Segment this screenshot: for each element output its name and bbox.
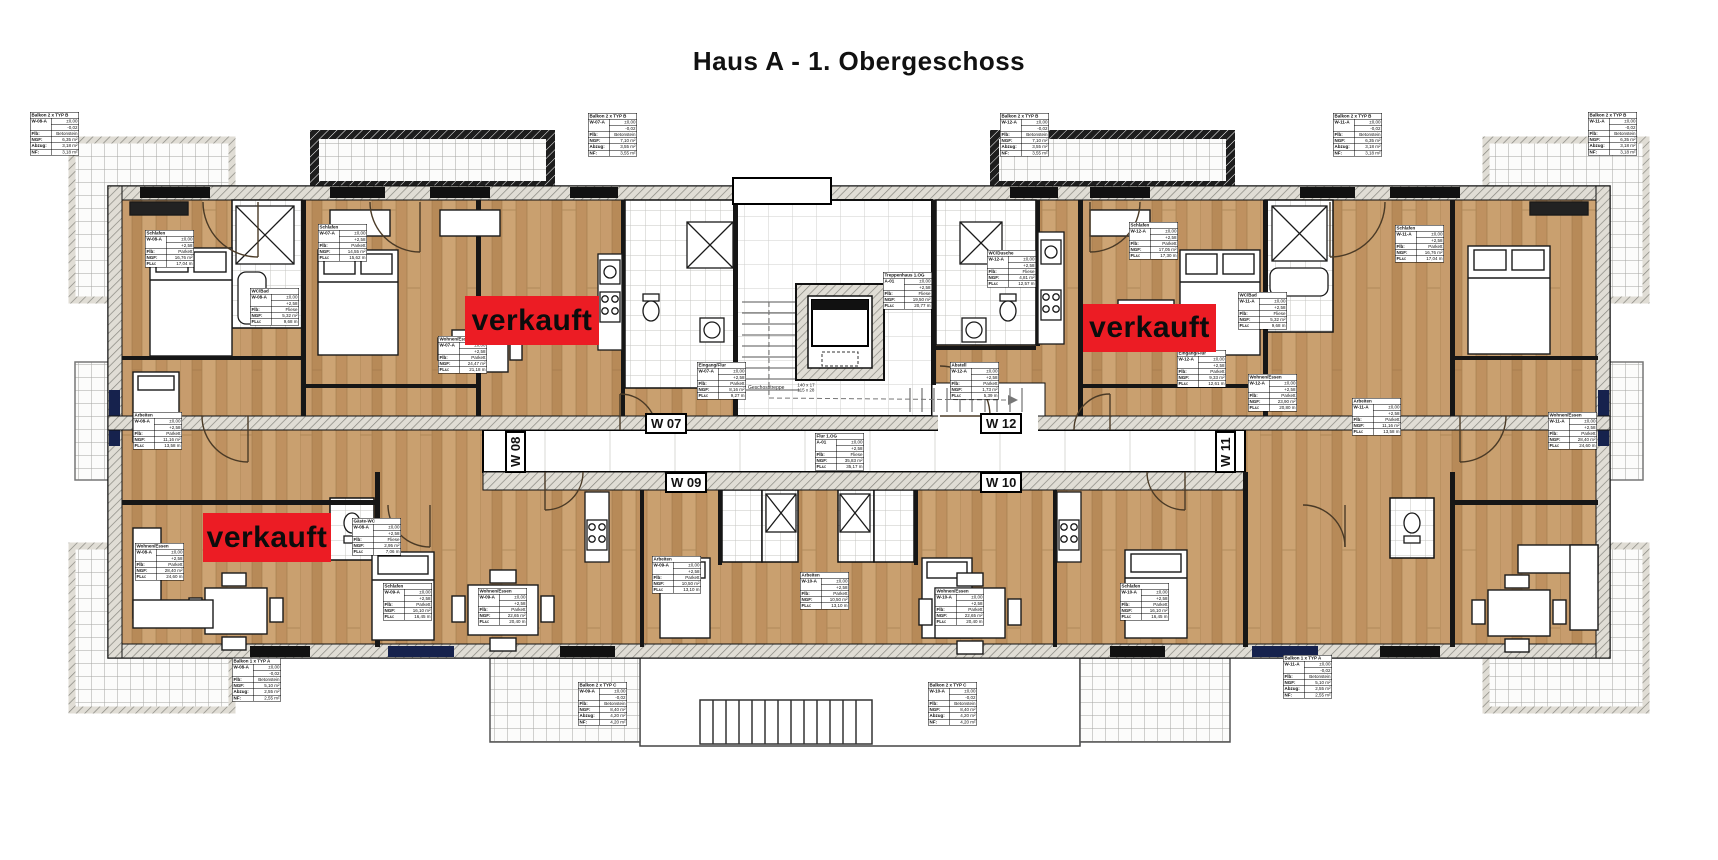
- bed: [1468, 246, 1550, 354]
- toilet: [1404, 513, 1420, 543]
- sofa: [1090, 210, 1150, 236]
- shower: [1272, 206, 1327, 261]
- bed: [372, 552, 434, 640]
- shower: [766, 494, 796, 532]
- corridor: [483, 430, 1245, 472]
- elevator: [796, 284, 884, 380]
- washing-machine: [962, 318, 986, 342]
- wardrobe: [130, 202, 188, 215]
- floor-plan-drawing: [0, 0, 1718, 860]
- entrance-porch: [733, 178, 831, 204]
- toilet: [1000, 294, 1016, 321]
- shower: [840, 494, 870, 532]
- bed: [1125, 550, 1187, 638]
- wardrobe: [1530, 202, 1588, 215]
- kitchen: [1057, 492, 1081, 562]
- terrace-bottom: [490, 656, 1230, 746]
- bathtub: [238, 272, 266, 324]
- balcony-top-left-frame: [310, 130, 555, 190]
- kitchen: [585, 492, 609, 562]
- bed: [1180, 250, 1260, 355]
- bed: [133, 372, 179, 442]
- washing-machine: [700, 318, 724, 342]
- shower: [687, 222, 733, 268]
- floor-plan-page: Haus A - 1. Obergeschoss: [0, 0, 1718, 860]
- shower: [960, 222, 1002, 264]
- toilet: [643, 294, 659, 321]
- bed: [660, 558, 710, 638]
- bed: [150, 248, 232, 356]
- balcony-top-right-frame: [990, 130, 1235, 190]
- bathtub: [1270, 268, 1328, 296]
- building-body: [108, 178, 1610, 658]
- toilet: [344, 513, 360, 543]
- bed: [318, 250, 398, 355]
- kitchen: [1038, 232, 1064, 344]
- kitchen: [598, 254, 622, 350]
